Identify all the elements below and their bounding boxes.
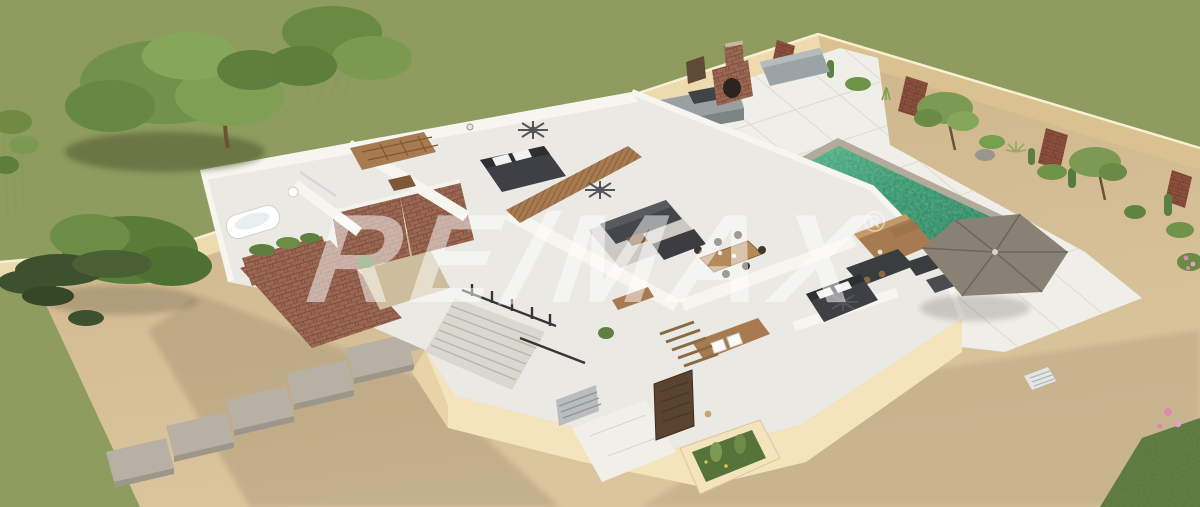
planter-cactus xyxy=(734,434,746,454)
watermark-brand-text: RE/MAX xyxy=(300,188,882,329)
villa-render: RE/MAX ® xyxy=(0,0,1200,507)
oven-mouth xyxy=(723,78,741,98)
cactus xyxy=(1164,194,1172,216)
shrub xyxy=(1124,205,1146,219)
rock xyxy=(975,149,995,161)
shrub xyxy=(845,77,871,91)
pendant-light xyxy=(467,124,473,130)
toilet xyxy=(288,187,298,197)
shrub xyxy=(1037,164,1067,180)
shrub xyxy=(1166,222,1194,238)
watermark-registered-mark: ® xyxy=(863,206,886,239)
pink-flowers xyxy=(1164,408,1172,416)
shrub xyxy=(979,135,1005,149)
pendant-light xyxy=(878,250,883,255)
render-canvas: RE/MAX ® xyxy=(0,0,1200,507)
ceiling-fan xyxy=(518,121,548,139)
remax-watermark: RE/MAX ® xyxy=(300,188,886,329)
cactus xyxy=(1028,148,1035,165)
wall-lamp xyxy=(705,411,712,418)
planter-cactus xyxy=(710,442,722,462)
